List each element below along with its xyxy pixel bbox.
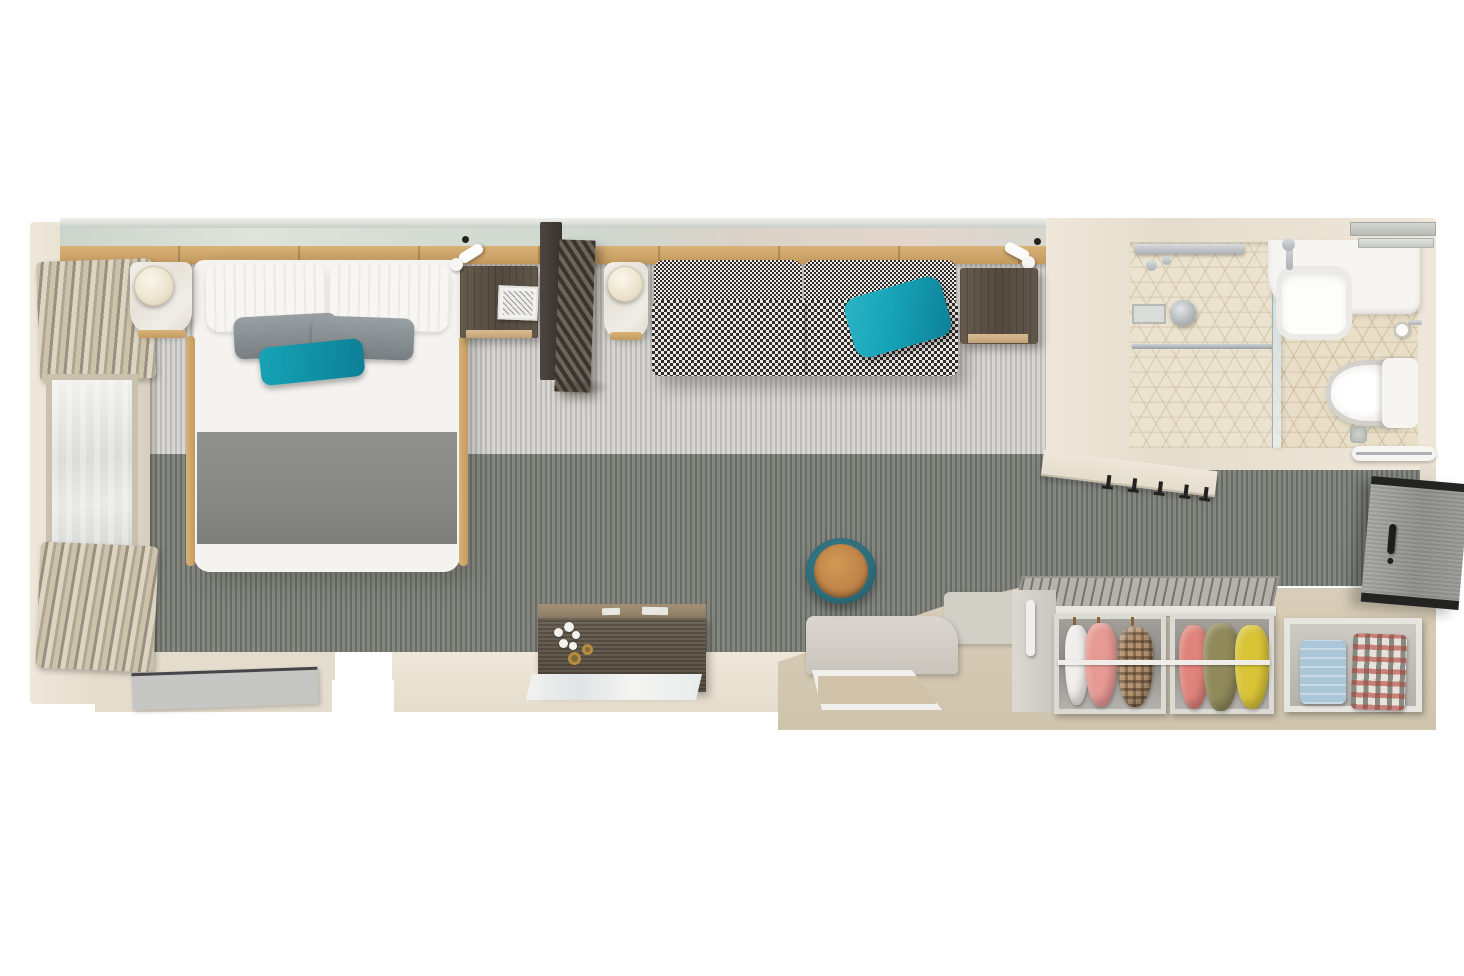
towel-rail-bar (1356, 452, 1432, 455)
console-bench (806, 616, 958, 674)
nightstand-left-base (138, 330, 186, 338)
shower-rail (1134, 244, 1244, 254)
sofa (652, 260, 958, 376)
shower-grab-bar (1132, 344, 1272, 349)
bed-foot-band (196, 544, 458, 572)
table-lamp-sofa-side (607, 266, 643, 302)
shower-control-2-icon (1162, 256, 1171, 265)
coat-hook-icon (1203, 487, 1208, 499)
desk-paper (602, 608, 620, 616)
divider-shadow (548, 378, 612, 396)
hanger-icon (1131, 617, 1134, 626)
side-table (960, 268, 1038, 344)
gold-knob-icon (582, 644, 593, 655)
ceiling-spot-left-icon (462, 236, 469, 243)
white-rug (526, 674, 702, 700)
orchid-petal-icon (572, 631, 580, 639)
orchid-petal-icon (554, 628, 563, 637)
entry-door (1361, 476, 1464, 610)
folded-denim (1300, 640, 1346, 704)
print-artwork (503, 290, 534, 315)
stool-seat (814, 544, 868, 598)
wardrobe-clothes-rail (1058, 660, 1270, 665)
table-lamp-left (134, 266, 174, 306)
faucet-knob-icon (1282, 238, 1295, 251)
orchid-petal-icon (564, 622, 574, 632)
floor-drain-icon (1350, 426, 1367, 443)
gold-knob-icon (568, 652, 581, 665)
bedside-desk-trim (466, 330, 532, 338)
wall-notch (332, 680, 394, 716)
folded-plaid-shirt (1351, 633, 1408, 711)
side-table-trim (968, 334, 1028, 343)
glass-shelf-upper (1350, 222, 1436, 236)
shower-head-icon (1170, 300, 1196, 326)
window (46, 374, 138, 562)
wardrobe-shelf-compartment (1284, 618, 1422, 712)
bed-throw-blanket (197, 432, 457, 544)
coat-hook-icon (1183, 484, 1188, 496)
towel-rail (1352, 446, 1436, 461)
garment-olive (1203, 623, 1239, 711)
room-divider-slats (554, 239, 595, 392)
toilet-tank (1382, 358, 1418, 428)
coat-hook-icon (1106, 475, 1111, 487)
door-surface (1361, 476, 1464, 610)
bed-frame-right (459, 336, 468, 566)
wardrobe-handle (1026, 600, 1035, 656)
tv-screen (131, 667, 318, 710)
garment-coral (1085, 623, 1117, 707)
orchid-petal-icon (569, 642, 577, 650)
toilet-paper-bracket (1408, 320, 1422, 325)
sofa-backrest-left (654, 260, 802, 304)
curtain-lower (35, 541, 158, 672)
window-glass (52, 380, 132, 556)
desk-paper (642, 607, 668, 615)
orchid-petal-icon (559, 639, 568, 648)
shower-control-icon (1146, 260, 1157, 271)
sink-basin (1276, 266, 1352, 340)
reading-light-left-head (450, 258, 463, 271)
bed-frame-left (186, 336, 195, 566)
glass-shelf-lower (1358, 238, 1434, 248)
coat-hook-icon (1158, 481, 1163, 493)
sofa-seam (804, 304, 807, 374)
framed-print (497, 285, 538, 320)
ceiling-spot-right-icon (1034, 238, 1041, 245)
garment-plaid (1117, 627, 1153, 707)
shower-niche (1132, 304, 1166, 324)
coat-hook-icon (1132, 478, 1137, 490)
nightstand-sofa-base (610, 332, 642, 340)
cabin-floor-plan (0, 0, 1464, 976)
garment-yellow (1235, 625, 1269, 709)
